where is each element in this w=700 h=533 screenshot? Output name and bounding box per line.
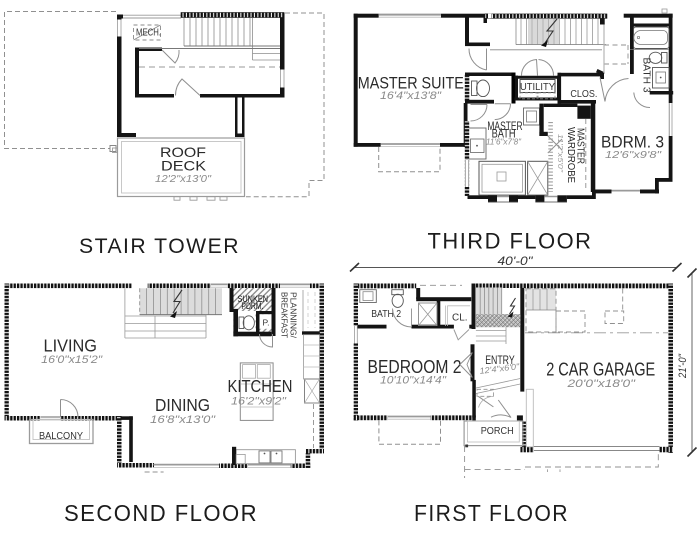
svg-text:BREAKFAST: BREAKFAST — [280, 292, 290, 339]
svg-text:21'-0": 21'-0" — [677, 353, 689, 379]
svg-text:PORCH: PORCH — [481, 425, 514, 437]
svg-text:LIVING: LIVING — [44, 336, 98, 356]
svg-text:MECH.: MECH. — [136, 28, 161, 39]
svg-text:CLOS.: CLOS. — [570, 88, 597, 100]
svg-text:STAIR TOWER: STAIR TOWER — [79, 234, 240, 258]
svg-text:FIRST FLOOR: FIRST FLOOR — [414, 500, 569, 526]
svg-text:BATH 2: BATH 2 — [371, 309, 401, 320]
svg-text:DECK: DECK — [161, 158, 207, 174]
svg-text:16'4"x13'8": 16'4"x13'8" — [380, 90, 442, 102]
svg-text:16'8"x13'0": 16'8"x13'0" — [150, 414, 216, 426]
svg-text:CL.: CL. — [452, 312, 468, 324]
svg-text:UTILITY: UTILITY — [520, 82, 555, 93]
svg-text:PDRM.: PDRM. — [241, 301, 263, 312]
svg-text:16'0"x15'2": 16'0"x15'2" — [41, 354, 103, 366]
svg-text:10'10"x14'4": 10'10"x14'4" — [380, 375, 447, 387]
svg-text:20'0"x18'0": 20'0"x18'0" — [566, 378, 636, 390]
svg-text:2 CAR GARAGE: 2 CAR GARAGE — [546, 359, 655, 380]
svg-text:KITCHEN: KITCHEN — [228, 376, 293, 396]
svg-text:BALCONY: BALCONY — [39, 430, 83, 442]
svg-text:11'6"x7'8": 11'6"x7'8" — [486, 136, 522, 146]
svg-text:P.: P. — [263, 318, 270, 328]
svg-text:DINING: DINING — [155, 395, 210, 415]
svg-text:11'2"x5'0": 11'2"x5'0" — [556, 134, 565, 172]
svg-text:WARDROBE: WARDROBE — [565, 127, 576, 183]
svg-text:SECOND FLOOR: SECOND FLOOR — [64, 500, 258, 526]
svg-text:THIRD FLOOR: THIRD FLOOR — [428, 229, 593, 254]
svg-text:12'2"x13'0": 12'2"x13'0" — [155, 174, 212, 185]
svg-text:12'6"x9'8": 12'6"x9'8" — [605, 149, 663, 161]
svg-text:16'2"x9'2": 16'2"x9'2" — [231, 396, 287, 408]
svg-text:BATH 3: BATH 3 — [641, 58, 653, 93]
svg-text:40'-0": 40'-0" — [498, 256, 534, 268]
